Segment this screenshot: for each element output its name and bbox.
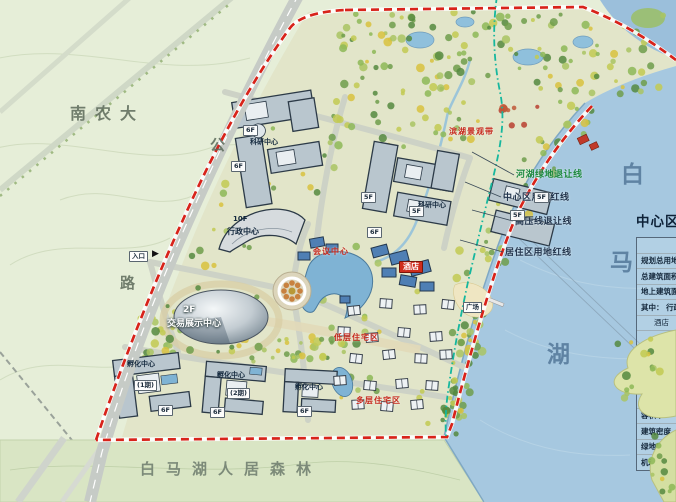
floor-tag: 5F bbox=[510, 210, 525, 221]
incubator-1-label: 孵化中心 bbox=[127, 361, 155, 368]
research-center-1-label: 科研中心 bbox=[250, 139, 278, 146]
road-name-char-2: 路 bbox=[120, 276, 144, 291]
forest-band-label: 白马湖人居森林 bbox=[140, 462, 322, 477]
admin-center-floors: 10F bbox=[233, 216, 248, 223]
legend-title: 中心区经济技术指标 bbox=[636, 210, 676, 230]
roundabout bbox=[273, 272, 311, 310]
legend-row: 规划总用地 bbox=[637, 254, 676, 270]
setback-line-label: 河湖绿地退让线 bbox=[516, 167, 583, 180]
entrance-arrow-icon: ▶ bbox=[152, 250, 159, 259]
setback-line-label: 居住区用地红线 bbox=[505, 245, 572, 258]
floor-tag: 6F bbox=[231, 161, 246, 172]
master-plan-canvas: 中心区经济技术指标 名称规划总用地总建筑面积地上建筑面积其中： 行政中心酒店交易… bbox=[0, 0, 676, 502]
residential-label-2: 多层住宅区 bbox=[356, 397, 401, 405]
legend-row: 其中： 行政中心 bbox=[637, 300, 676, 316]
incubator-2-label: 孵化中心 bbox=[217, 372, 245, 379]
floor-tag: 6F bbox=[367, 227, 382, 238]
legend-row: 总建筑面积 bbox=[637, 269, 676, 285]
lake-name-char-3: 湖 bbox=[547, 344, 570, 367]
conference-label: 会议中心 bbox=[313, 248, 349, 256]
legend-row: 地上建筑面积 bbox=[637, 285, 676, 301]
floor-tag: 6F bbox=[243, 125, 258, 136]
floor-tag: 5F bbox=[361, 192, 376, 203]
island bbox=[631, 8, 665, 28]
road-name-char-1: 公 bbox=[210, 138, 234, 153]
lake-peninsula bbox=[598, 322, 676, 502]
incubator-3-label: 孵化中心 bbox=[295, 384, 323, 391]
plaza-label: 广场 bbox=[463, 302, 482, 313]
floor-tag: 6F bbox=[297, 406, 312, 417]
floor-tag: 5F bbox=[409, 206, 424, 217]
hotel-label: 酒店 bbox=[399, 261, 423, 273]
expo-center-label: 交易展示中心 bbox=[167, 320, 221, 329]
legend-row: 名称 bbox=[637, 238, 676, 254]
floor-tag: 6F bbox=[158, 405, 173, 416]
lake-name-char-1: 白 bbox=[621, 164, 644, 187]
expo-center-floors: 2F bbox=[183, 306, 195, 315]
lake-name-char-2: 马 bbox=[610, 252, 633, 275]
floor-tag: 5F bbox=[534, 192, 549, 203]
university-label: 南农大 bbox=[70, 106, 145, 122]
floor-tag: 6F bbox=[210, 407, 225, 418]
entrance-label: 入口 bbox=[129, 251, 148, 262]
lakeside-belt-label: 滨湖景观带 bbox=[449, 128, 494, 136]
incubator-2-phase: (2期) bbox=[227, 388, 250, 399]
incubator-1-phase: (1期) bbox=[134, 380, 157, 391]
residential-label-1: 低层住宅区 bbox=[334, 334, 379, 342]
admin-center-label: 行政中心 bbox=[227, 228, 259, 236]
